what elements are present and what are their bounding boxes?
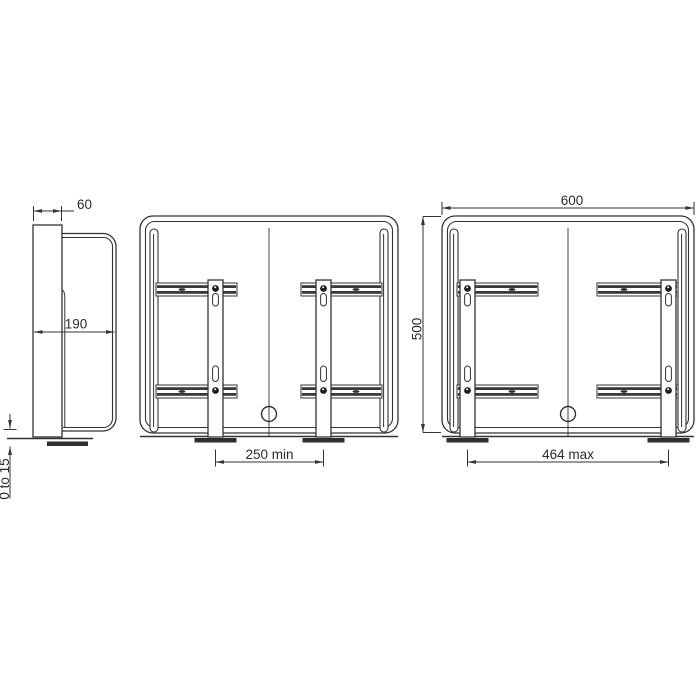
rail-screw [621,390,628,393]
dimension-overall-height: 500 [410,217,442,433]
dimension-label-depth-overall: 190 [65,317,88,332]
front-view-max-spacing: 600 500 464 max [410,193,695,467]
drawing-canvas: 60 190 0 to 15 [0,0,700,700]
mounting-post-left [208,280,223,437]
dimension-label-depth-top: 60 [77,197,92,212]
glass-edge-channel-right [678,229,686,432]
mounting-rail [156,283,237,296]
foot-plate [195,438,237,443]
dimension-depth-top: 60 [34,197,93,221]
glass-edge-channel-left [450,229,458,432]
dimension-label-overall-width: 600 [561,193,584,208]
mounting-post-left [460,280,475,437]
front-view-min-spacing: 250 min [140,216,398,467]
dimension-bracket-spacing-max: 464 max [468,447,669,467]
rail-screw [509,288,516,291]
post-side-profile [33,225,62,437]
foot-plate [648,438,690,443]
mounting-rail [301,283,382,296]
dimension-bracket-spacing-min: 250 min [216,447,324,467]
rail-screw [621,288,628,291]
mounting-rail [301,385,382,398]
foot-plate [447,438,489,443]
glass-edge-channel-right [380,229,388,432]
rail-screw [509,390,516,393]
mounting-post-right [316,280,331,437]
base-plate-side [47,442,88,447]
rail-screw [353,390,360,393]
dimension-overall-width: 600 [442,193,694,215]
mounting-post-right [661,280,676,437]
foot-plate [303,438,345,443]
technical-drawing: 60 190 0 to 15 [0,0,700,700]
dimension-label-floor-clearance: 0 to 15 [0,458,12,499]
dimension-label-bracket-spacing-min: 250 min [245,447,293,462]
glass-front-edge-line [63,290,65,427]
rail-screw [179,288,186,291]
side-view: 60 190 0 to 15 [0,197,116,500]
rail-screw [353,288,360,291]
dimension-floor-clearance: 0 to 15 [0,414,17,500]
glass-edge-channel-left [150,229,158,432]
mounting-rail [156,385,237,398]
rail-screw [179,390,186,393]
dimension-label-bracket-spacing-max: 464 max [542,447,594,462]
dimension-label-overall-height: 500 [410,318,425,341]
